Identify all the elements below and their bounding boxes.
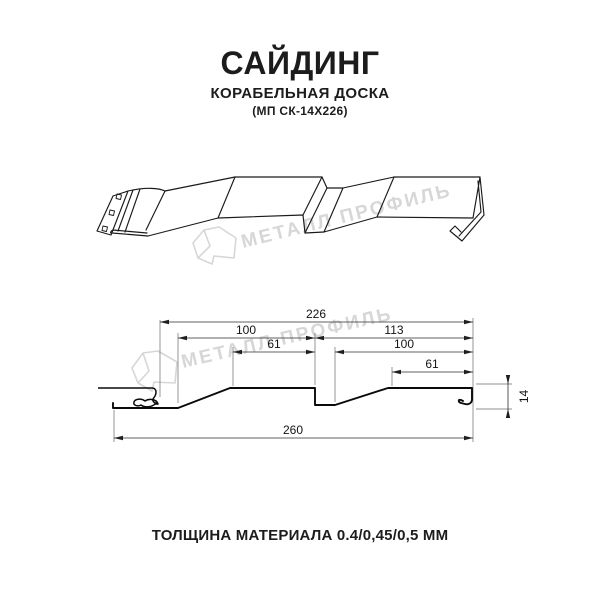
watermark-lower: МЕТАЛЛ ПРОФИЛЬ: [132, 304, 395, 391]
brand-logo-icon: [193, 227, 236, 264]
technical-drawing: МЕТАЛЛ ПРОФИЛЬ МЕТАЛЛ ПРОФИЛЬ: [0, 0, 600, 600]
brand-logo-icon: [132, 351, 177, 391]
dim-label-overall: 260: [283, 423, 303, 437]
dim-label-right-face: 61: [425, 357, 439, 371]
dim-label-depth: 14: [517, 390, 531, 404]
product-drawing-page: САЙДИНГ КОРАБЕЛЬНАЯ ДОСКА (МП СК-14Х226)…: [0, 0, 600, 600]
dimension-100-right: 100: [335, 337, 473, 354]
thickness-note: ТОЛЩИНА МАТЕРИАЛА 0.4/0,45/0,5 ММ: [0, 527, 600, 545]
dimension-260: 260: [114, 423, 473, 440]
dim-label-left-panel: 100: [236, 323, 256, 337]
dim-label-right-panel: 100: [394, 337, 414, 351]
dimension-14: 14: [506, 375, 531, 418]
dim-label-module: 226: [306, 307, 326, 321]
dim-label-right-panel-outer: 113: [384, 323, 403, 337]
dimension-226: 226: [160, 307, 473, 324]
watermark-upper: МЕТАЛЛ ПРОФИЛЬ: [193, 180, 454, 264]
dim-label-left-face: 61: [267, 337, 281, 351]
dimension-61-right: 61: [392, 357, 473, 374]
